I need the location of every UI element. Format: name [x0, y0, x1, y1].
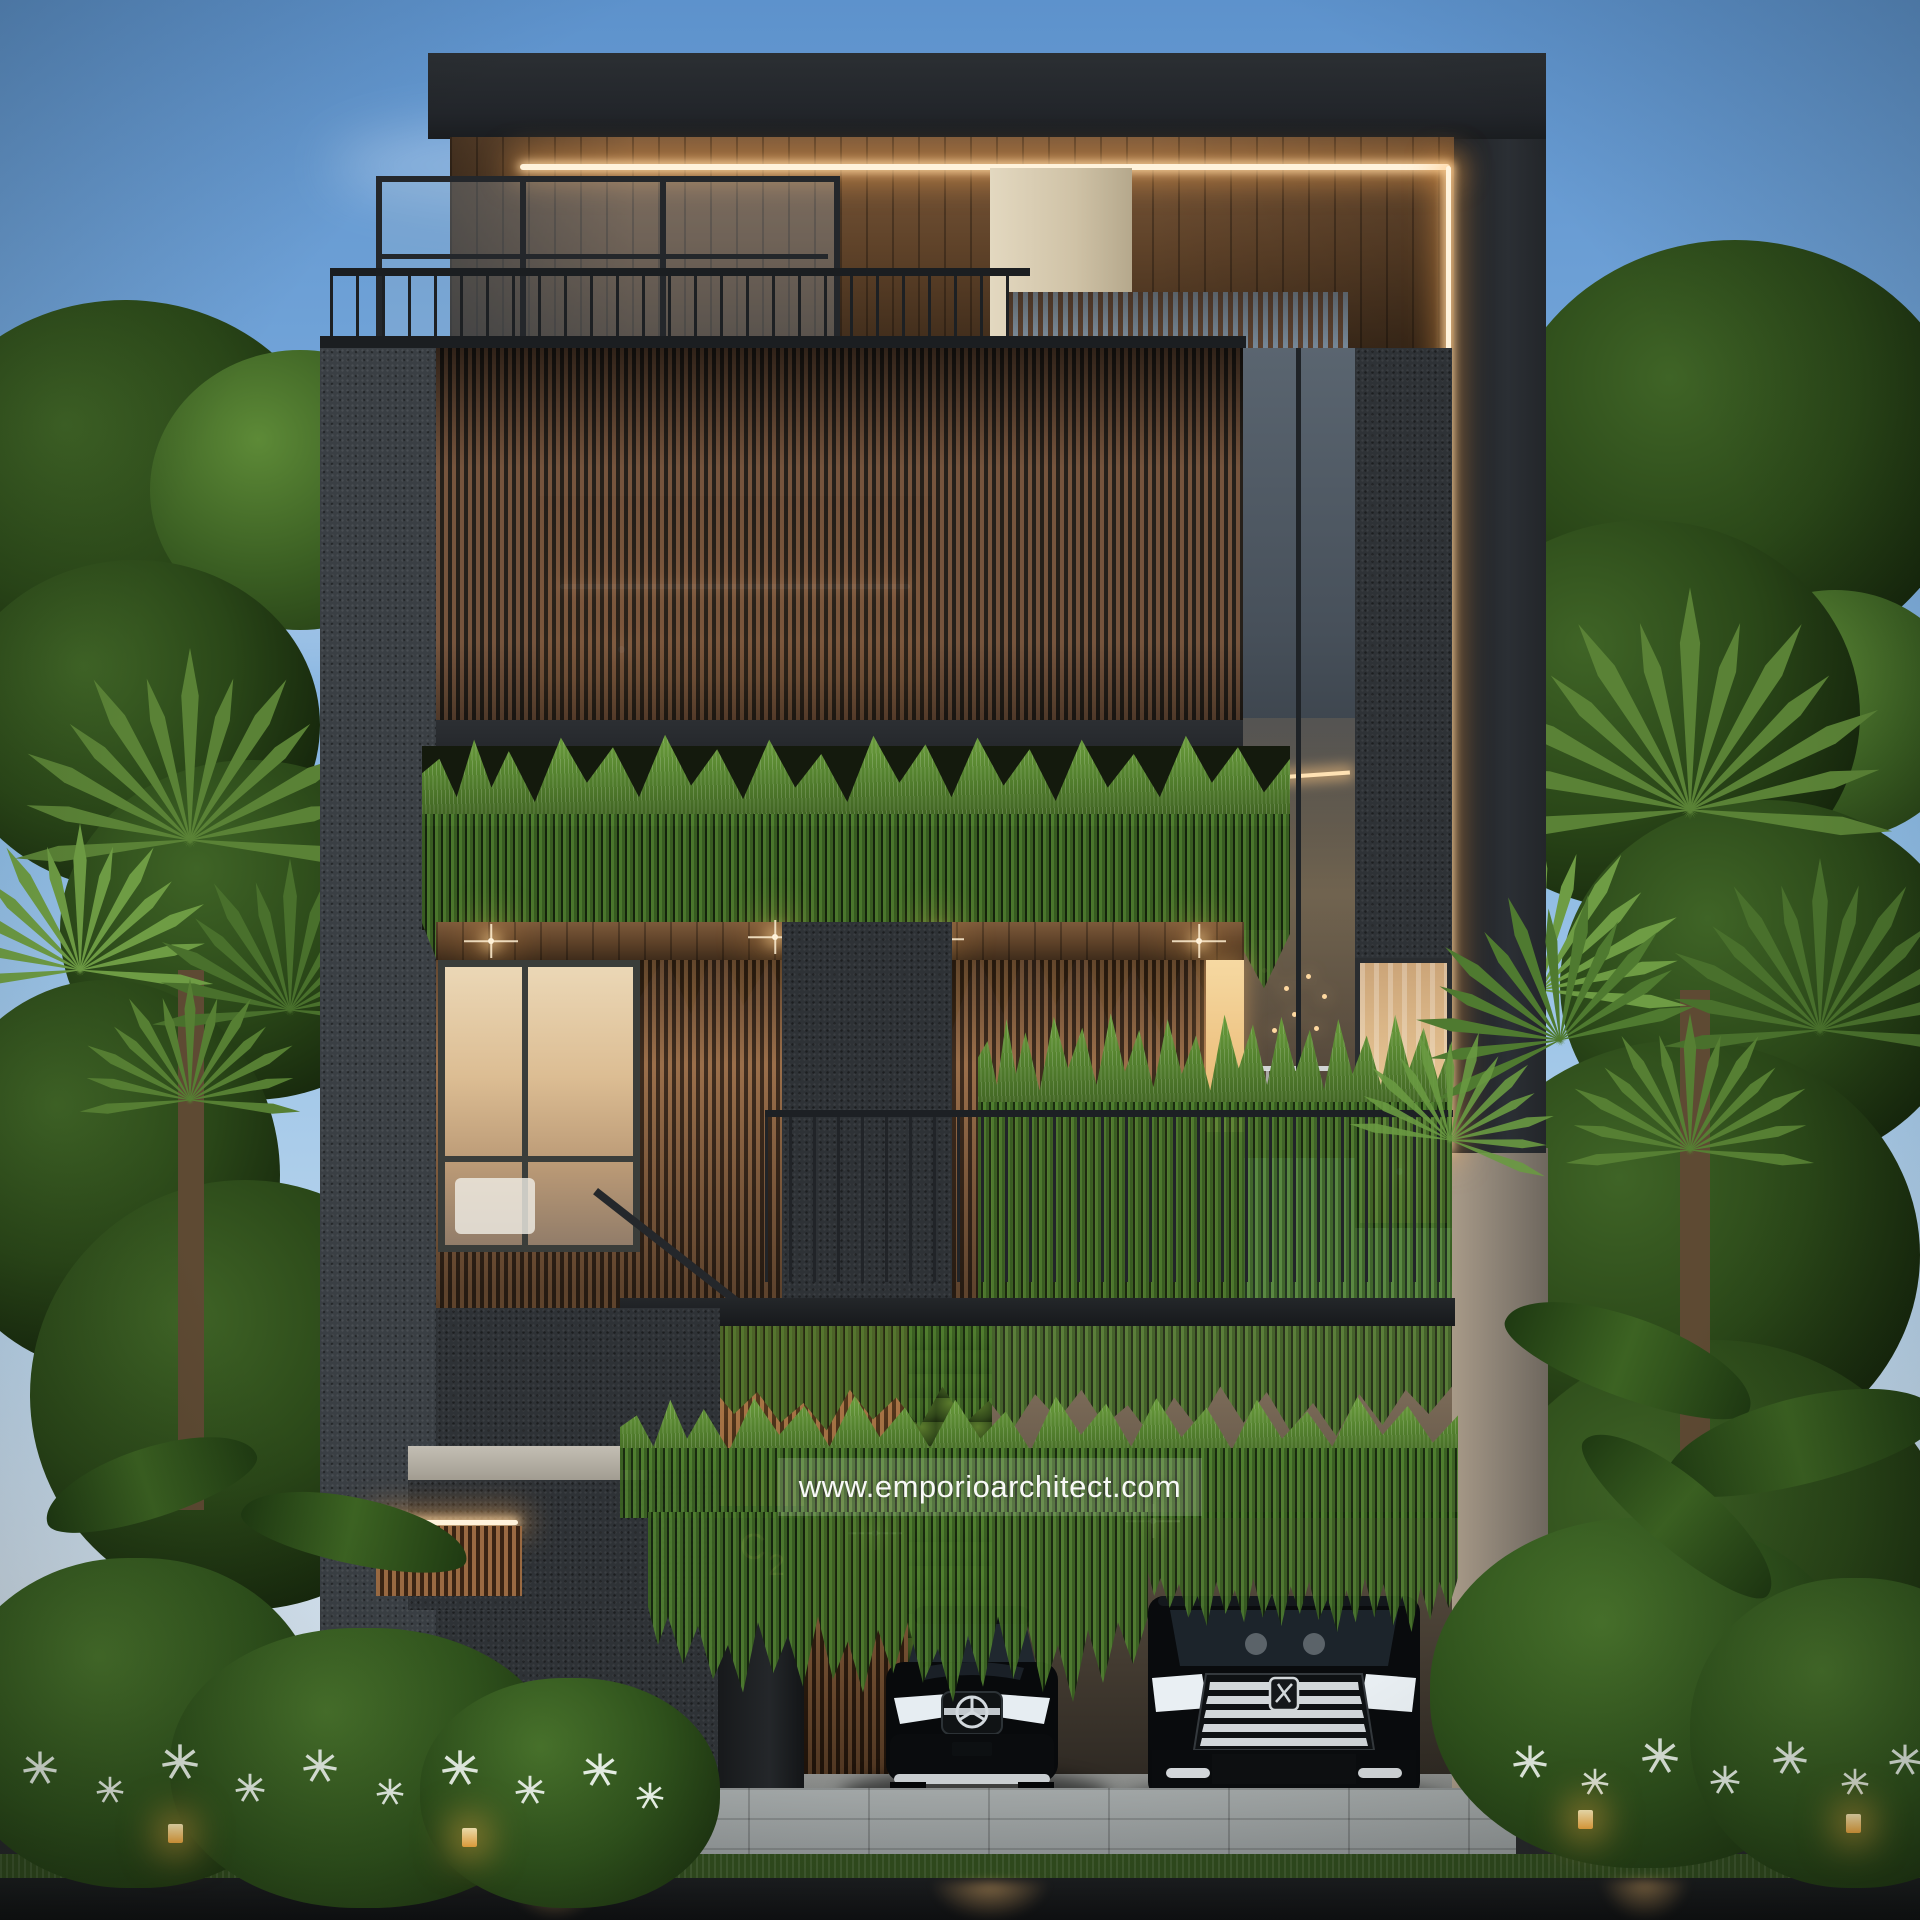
mpv-headlight-right — [1360, 1674, 1416, 1712]
soffit-downlight — [772, 934, 778, 940]
roof-canopy — [428, 53, 1546, 139]
garden-cube-light — [1578, 1810, 1593, 1829]
garden-cube-light — [462, 1828, 477, 1847]
mpv-car — [1136, 1590, 1432, 1820]
interior-sofa-hint — [455, 1178, 535, 1234]
spider-lily-row-left — [10, 1718, 670, 1828]
sedan-bumper — [890, 1734, 1054, 1780]
mpv-fog-trim-right — [1358, 1768, 1402, 1778]
mpv-headlight-left — [1152, 1674, 1208, 1712]
slat-screen-shade — [436, 348, 1244, 724]
architectural-render-scene: C2 — [0, 0, 1920, 1920]
mpv-windshield — [1170, 1610, 1398, 1666]
roof-led-strip-horizontal — [520, 164, 1450, 170]
window-mullion-h — [438, 1156, 640, 1162]
mpv-bumper-mesh — [1212, 1754, 1356, 1784]
garden-cube-light — [1846, 1814, 1861, 1833]
mpv-grille-bar — [1200, 1738, 1368, 1746]
mpv-fog-trim-left — [1166, 1768, 1210, 1778]
watermark-text: www.emporioarchitect.com — [799, 1469, 1181, 1505]
roof-railing-top-bar — [330, 268, 1030, 276]
watermark-band: www.emporioarchitect.com — [778, 1458, 1202, 1516]
garage-lintel-beam — [620, 1298, 1455, 1326]
mpv-headrest — [1303, 1633, 1325, 1655]
mpv-headrest — [1245, 1633, 1267, 1655]
planter-cap — [408, 1446, 648, 1480]
road-reflection — [930, 1882, 1050, 1920]
soffit-downlight — [488, 938, 494, 944]
road-reflection — [1600, 1880, 1690, 1920]
spider-lily-row-right — [1500, 1708, 1920, 1818]
palm-fronds-foreground — [1300, 840, 1720, 1260]
mpv-grille-bar — [1202, 1724, 1366, 1732]
garden-cube-light — [168, 1824, 183, 1843]
pergola-beam — [376, 254, 828, 259]
sedan-plate — [952, 1742, 992, 1756]
soffit-downlight — [1196, 938, 1202, 944]
